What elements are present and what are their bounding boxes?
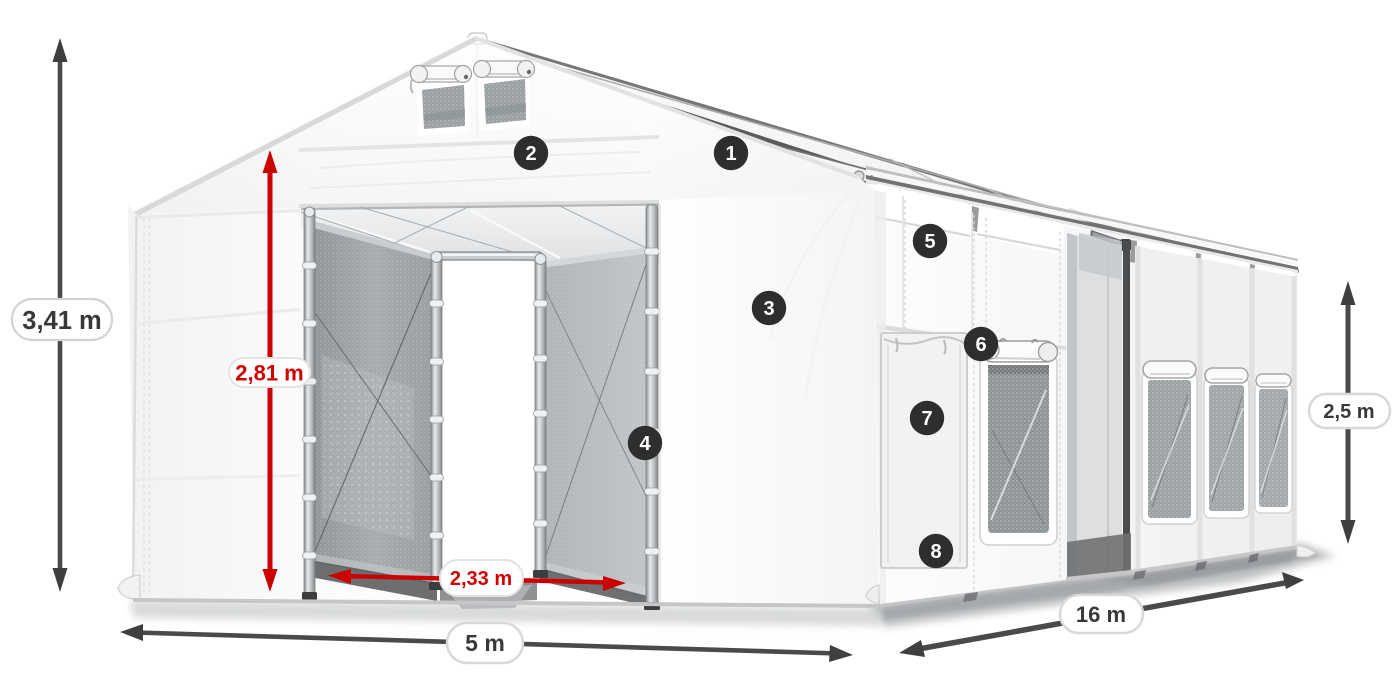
svg-text:1: 1 bbox=[725, 143, 736, 165]
svg-text:5 m: 5 m bbox=[465, 630, 505, 656]
svg-text:5: 5 bbox=[924, 231, 935, 253]
svg-text:3,41 m: 3,41 m bbox=[22, 307, 101, 335]
svg-text:2: 2 bbox=[525, 143, 536, 165]
svg-text:8: 8 bbox=[930, 541, 941, 563]
svg-text:16 m: 16 m bbox=[1076, 602, 1126, 627]
svg-text:2,81 m: 2,81 m bbox=[235, 361, 304, 386]
svg-text:6: 6 bbox=[975, 334, 986, 356]
svg-text:2,33 m: 2,33 m bbox=[450, 568, 512, 590]
svg-text:3: 3 bbox=[763, 298, 774, 320]
svg-text:4: 4 bbox=[639, 433, 651, 455]
svg-text:7: 7 bbox=[921, 408, 932, 430]
svg-text:2,5 m: 2,5 m bbox=[1323, 401, 1374, 423]
